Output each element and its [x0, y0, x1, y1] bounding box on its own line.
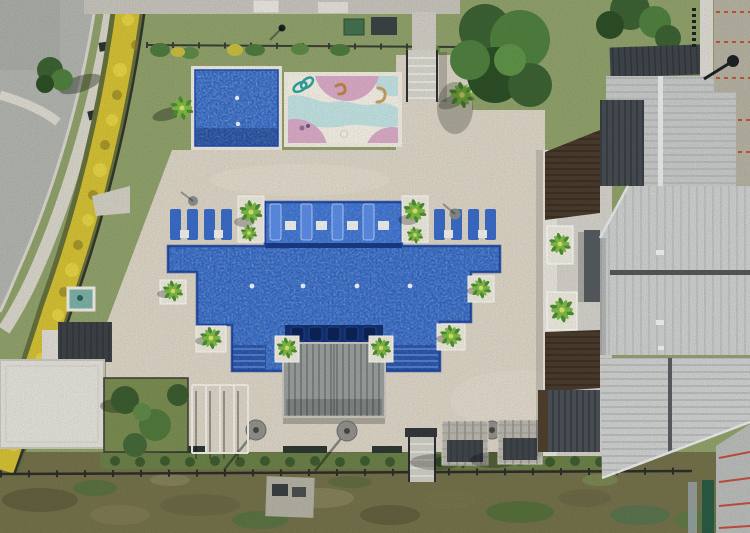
photo-grain — [0, 0, 750, 533]
aerial-pool-photo — [0, 0, 750, 533]
